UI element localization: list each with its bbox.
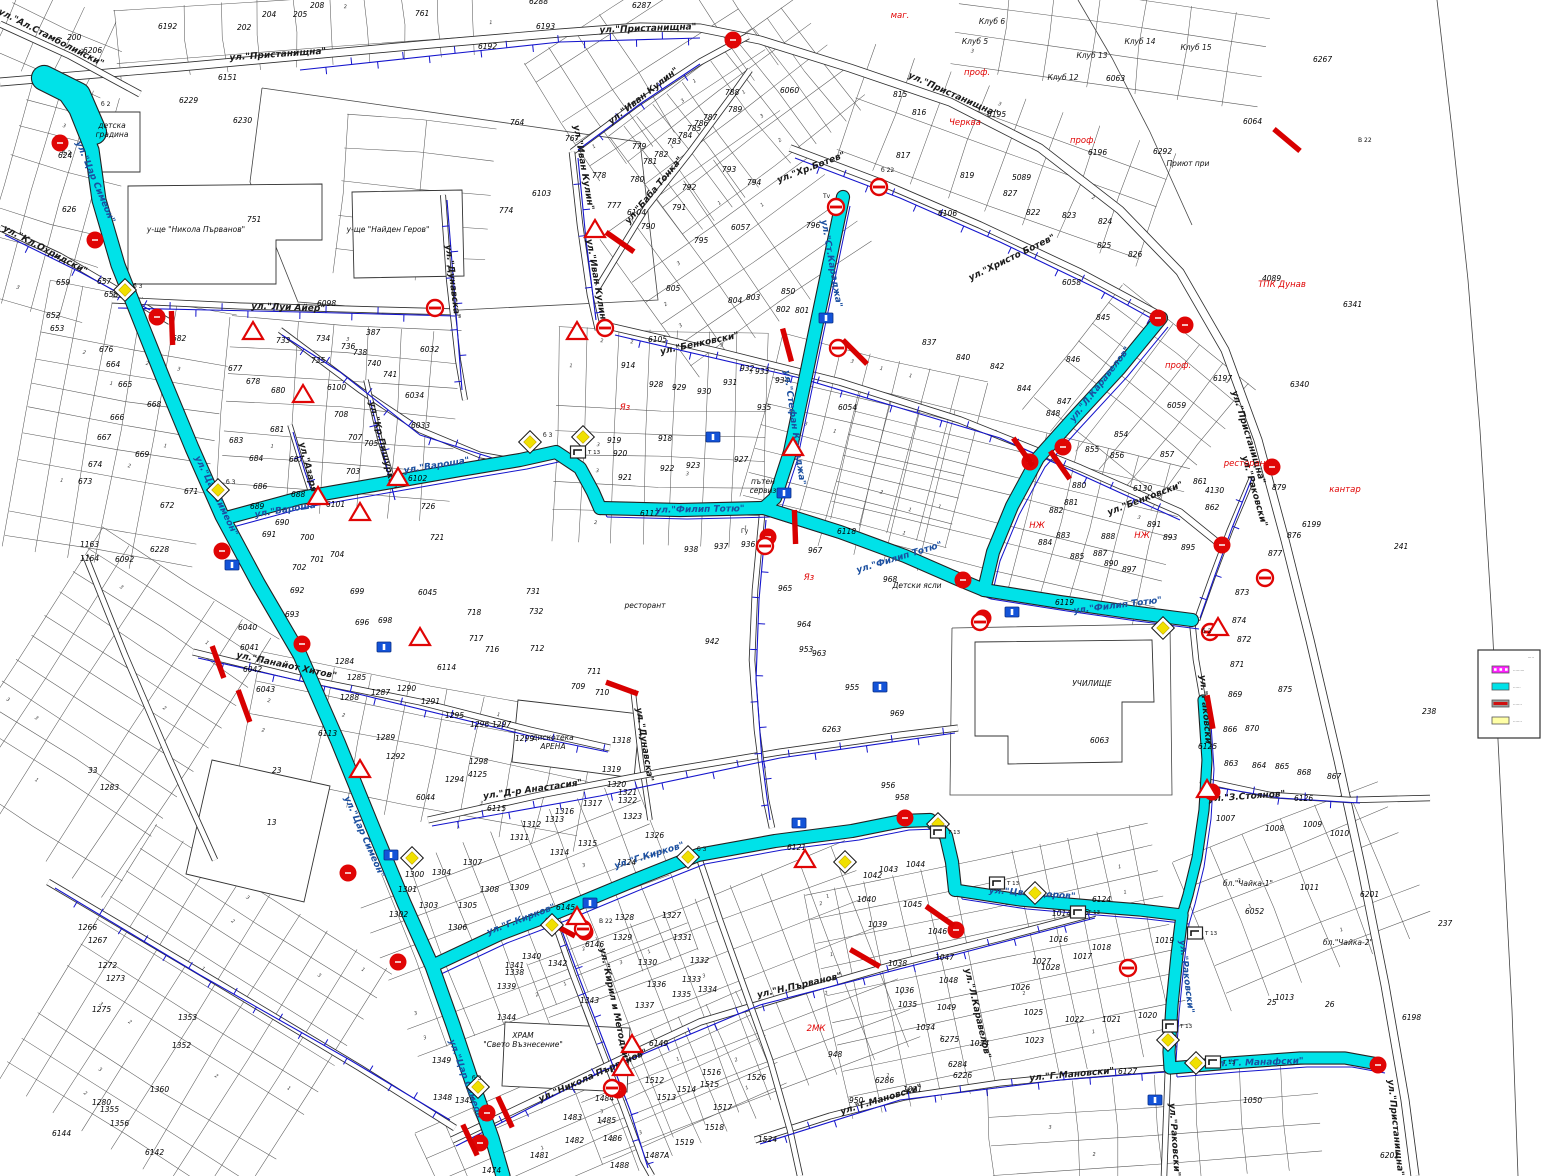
parcel-number: 6197 bbox=[1213, 374, 1232, 383]
lot-subnumber: 1 bbox=[569, 363, 572, 369]
parcel-number: 6092 bbox=[115, 555, 134, 564]
info-sign bbox=[377, 642, 391, 652]
parcel-number: 1016 bbox=[1049, 935, 1068, 944]
no-entry-sign bbox=[604, 1080, 620, 1096]
parcel-number: 965 bbox=[778, 584, 793, 593]
parcel-number: 6121 bbox=[787, 843, 806, 852]
sign-note: б 3 bbox=[133, 283, 143, 290]
parcel-number: 868 bbox=[1297, 768, 1312, 777]
svg-text:Т 13: Т 13 bbox=[947, 830, 961, 836]
parcel-number: 6284 bbox=[948, 1060, 967, 1069]
parcel-number: 1309 bbox=[510, 883, 529, 892]
parcel-number: 669 bbox=[135, 450, 150, 459]
parcel-number: 783 bbox=[667, 137, 682, 146]
parcel-number: 854 bbox=[1114, 430, 1129, 439]
parcel-number: 237 bbox=[1438, 919, 1453, 928]
poi-label: ХРАМ bbox=[511, 1031, 534, 1040]
parcel-number: 1487А bbox=[645, 1151, 669, 1160]
parcel-number: 865 bbox=[1275, 762, 1290, 771]
parcel-number: 23 bbox=[272, 766, 282, 775]
parcel-number: 664 bbox=[106, 360, 121, 369]
parcel-number: 693 bbox=[285, 610, 300, 619]
sign-note: В 22 bbox=[599, 918, 613, 925]
parcel-number: 692 bbox=[290, 586, 305, 595]
parcel-number: 1337 bbox=[635, 1001, 654, 1010]
parcel-number: 1355 bbox=[100, 1105, 119, 1114]
parcel-number: 6057 bbox=[731, 223, 750, 232]
parcel-number: 241 bbox=[1394, 542, 1408, 551]
parcel-number: 1048 bbox=[939, 976, 958, 985]
parcel-number: 1333 bbox=[682, 975, 701, 984]
red-annotation-label: проф. bbox=[1165, 361, 1191, 371]
parcel-number: 6060 bbox=[780, 86, 799, 95]
parcel-number: 674 bbox=[88, 460, 103, 469]
red-annotation-label: маг. bbox=[891, 11, 910, 21]
parcel-number: 1044 bbox=[906, 860, 925, 869]
parcel-number: 717 bbox=[469, 634, 484, 643]
parcel-number: 1300 bbox=[405, 870, 424, 879]
lot-subnumber: 3 bbox=[686, 471, 689, 477]
parcel-number: 864 bbox=[1252, 761, 1267, 770]
parcel-number: 698 bbox=[378, 616, 393, 625]
parcel-number: 1020 bbox=[1138, 1011, 1157, 1020]
parcel-number: 1306 bbox=[448, 923, 467, 932]
lot-subnumber: 2 bbox=[1092, 1152, 1096, 1158]
poi-label: Клуб 5 bbox=[962, 37, 989, 46]
parcel-number: 6063 bbox=[1090, 736, 1109, 745]
parcel-number: 202 bbox=[237, 23, 252, 32]
poi-label: АРЕНА bbox=[539, 742, 565, 751]
parcel-number: 1298 bbox=[469, 757, 488, 766]
parcel-number: 804 bbox=[728, 296, 743, 305]
parcel-number: 1518 bbox=[705, 1123, 724, 1132]
parcel-number: 6287 bbox=[632, 1, 651, 10]
parcel-number: 6145 bbox=[556, 903, 575, 912]
parcel-number: 1018 bbox=[1092, 943, 1111, 952]
red-annotation-label: проф. bbox=[1070, 136, 1096, 146]
parcel-number: 1011 bbox=[1300, 883, 1319, 892]
parcel-number: 208 bbox=[310, 1, 325, 10]
parcel-number: 6267 bbox=[1313, 55, 1332, 64]
parcel-number: 716 bbox=[485, 645, 500, 654]
legend-cyan: ······ bbox=[1492, 683, 1521, 690]
svg-text:Т 13: Т 13 bbox=[1006, 881, 1020, 887]
no-entry-sign bbox=[597, 320, 613, 336]
parcel-number: 680 bbox=[271, 386, 286, 395]
parcel-number: 4130 bbox=[1205, 486, 1224, 495]
parcel-number: 803 bbox=[746, 293, 761, 302]
parcel-number: 6127 bbox=[1118, 1067, 1137, 1076]
lot-subnumber: 2 bbox=[594, 520, 597, 526]
legend-box bbox=[1478, 650, 1540, 738]
hydrant-marker bbox=[1214, 537, 1231, 554]
hydrant-marker bbox=[294, 636, 311, 653]
info-sign bbox=[873, 682, 887, 692]
parcel-number: 1486 bbox=[603, 1134, 622, 1143]
parcel-number: 668 bbox=[147, 400, 162, 409]
parcel-number: 6058 bbox=[1062, 278, 1081, 287]
parcel-number: 1038 bbox=[888, 959, 907, 968]
info-sign bbox=[777, 488, 791, 498]
parcel-number: 6126 bbox=[1294, 794, 1313, 803]
parcel-number: 888 bbox=[1101, 532, 1116, 541]
parcel-number: 779 bbox=[632, 142, 647, 151]
info-sign bbox=[792, 818, 806, 828]
sign-note: б 22 bbox=[881, 167, 894, 174]
hydrant-marker bbox=[955, 572, 972, 589]
parcel-number: 1164 bbox=[80, 554, 99, 563]
parcel-number: 13 bbox=[267, 818, 277, 827]
parcel-number: 6064 bbox=[1243, 117, 1262, 126]
parcel-number: 6059 bbox=[1167, 401, 1186, 410]
poi-label: у-ще "Никола Първанов" bbox=[146, 225, 245, 234]
legend-item-label: ······· bbox=[1513, 719, 1522, 724]
parcel-number: 1050 bbox=[1243, 1096, 1262, 1105]
parcel-number: 6292 bbox=[1153, 147, 1172, 156]
parcel-number: 1288 bbox=[340, 693, 359, 702]
parcel-number: 691 bbox=[262, 530, 276, 539]
legend-title: ····· bbox=[1528, 655, 1534, 660]
poi-label: УЧИЛИЩЕ bbox=[1072, 679, 1112, 688]
parcel-number: 922 bbox=[660, 464, 675, 473]
parcel-number: 1514 bbox=[677, 1085, 696, 1094]
parcel-number: 1036 bbox=[895, 986, 914, 995]
parcel-number: 1010 bbox=[1330, 829, 1349, 838]
parcel-number: 1485 bbox=[597, 1116, 616, 1125]
svg-text:Т 13: Т 13 bbox=[1204, 931, 1218, 937]
parcel-number: 1040 bbox=[857, 895, 876, 904]
parcel-number: 790 bbox=[641, 222, 656, 231]
parcel-number: 876 bbox=[1287, 531, 1302, 540]
legend-item-label: ······ bbox=[1513, 685, 1521, 690]
parcel-number: 709 bbox=[571, 682, 586, 691]
parcel-number: 1524 bbox=[758, 1135, 777, 1144]
parcel-number: 1352 bbox=[172, 1041, 191, 1050]
hydrant-marker bbox=[214, 543, 231, 560]
parcel-number: 1046 bbox=[928, 927, 947, 936]
parcel-number: 856 bbox=[1110, 451, 1125, 460]
parcel-number: 1323 bbox=[623, 812, 642, 821]
parcel-number: 702 bbox=[292, 563, 307, 572]
parcel-number: 815 bbox=[893, 90, 908, 99]
sign-note: б 3 bbox=[697, 846, 707, 853]
parcel-number: 1360 bbox=[150, 1085, 169, 1094]
parcel-number: 1034 bbox=[916, 1023, 935, 1032]
parcel-number: 712 bbox=[530, 644, 545, 653]
poi-label: градина bbox=[96, 130, 129, 139]
parcel-number: 6063 bbox=[1106, 74, 1125, 83]
parcel-number: 1326 bbox=[645, 831, 664, 840]
hydrant-marker bbox=[390, 954, 407, 971]
parcel-number: 817 bbox=[896, 151, 911, 160]
parcel-number: 919 bbox=[607, 436, 622, 445]
parcel-number: 823 bbox=[1062, 211, 1077, 220]
parcel-number: 874 bbox=[1232, 616, 1247, 625]
parcel-number: 955 bbox=[845, 683, 860, 692]
lot-subnumber: 1 bbox=[270, 444, 274, 450]
cadastral-map-screenshot: 2111131323231332112233133331123232321231… bbox=[0, 0, 1541, 1176]
parcel-number: 788 bbox=[725, 88, 740, 97]
parcel-number: 937 bbox=[714, 542, 729, 551]
parcel-number: 1314 bbox=[550, 848, 569, 857]
parcel-number: 761 bbox=[415, 9, 429, 18]
parcel-number: 1342 bbox=[548, 959, 567, 968]
poi-label: Клуб 14 bbox=[1124, 37, 1155, 46]
info-sign bbox=[706, 432, 720, 442]
parcel-number: 684 bbox=[249, 454, 264, 463]
legend-item-label: ········· bbox=[1513, 668, 1524, 673]
parcel-number: 1039 bbox=[868, 920, 887, 929]
parcel-number: 935 bbox=[757, 403, 772, 412]
lot-subnumber: 1 bbox=[489, 20, 493, 26]
poi-label: Клуб 13 bbox=[1076, 51, 1107, 60]
parcel-number: 1163 bbox=[80, 540, 99, 549]
parcel-number: 677 bbox=[228, 364, 243, 373]
parcel-number: 871 bbox=[1230, 660, 1244, 669]
parcel-number: 6041 bbox=[240, 643, 259, 652]
svg-text:Т 13: Т 13 bbox=[1087, 910, 1101, 916]
info-sign bbox=[583, 898, 597, 908]
parcel-number: 6341 bbox=[1343, 300, 1362, 309]
parcel-number: 1356 bbox=[110, 1119, 129, 1128]
parcel-number: 657 bbox=[97, 277, 112, 286]
parcel-number: 688 bbox=[291, 490, 306, 499]
parcel-number: 6275 bbox=[940, 1035, 959, 1044]
legend-red-cased: ······· bbox=[1492, 700, 1522, 707]
parcel-number: 895 bbox=[1181, 543, 1196, 552]
no-entry-sign bbox=[1120, 960, 1136, 976]
parcel-number: 1339 bbox=[497, 982, 516, 991]
parcel-number: 704 bbox=[330, 550, 345, 559]
svg-text:Т 13: Т 13 bbox=[1222, 1060, 1236, 1066]
parcel-number: 778 bbox=[592, 171, 607, 180]
parcel-number: 1301 bbox=[398, 885, 417, 894]
parcel-number: 1348 bbox=[433, 1093, 452, 1102]
parcel-number: 1297 bbox=[492, 720, 511, 729]
parcel-number: 1517 bbox=[713, 1103, 732, 1112]
parcel-number: 1349 bbox=[432, 1056, 451, 1065]
parcel-number: 1304 bbox=[432, 868, 451, 877]
parcel-number: 877 bbox=[1268, 549, 1283, 558]
parcel-number: 1340 bbox=[522, 952, 541, 961]
parcel-number: 816 bbox=[912, 108, 927, 117]
parcel-number: 721 bbox=[430, 533, 444, 542]
parcel-number: 1023 bbox=[1025, 1036, 1044, 1045]
parcel-number: 1311 bbox=[510, 833, 529, 842]
parcel-number: 1035 bbox=[898, 1000, 917, 1009]
parcel-number: 1302 bbox=[389, 910, 408, 919]
parcel-number: 1474 bbox=[482, 1166, 501, 1175]
parcel-number: 1290 bbox=[397, 684, 416, 693]
parcel-number: 1335 bbox=[672, 990, 691, 999]
sign-note: б 3 bbox=[472, 1075, 482, 1082]
parcel-number: 6199 bbox=[1302, 520, 1321, 529]
parcel-number: 801 bbox=[795, 306, 809, 315]
parcel-number: 6113 bbox=[318, 729, 337, 738]
parcel-number: 1017 bbox=[1073, 952, 1092, 961]
no-entry-sign bbox=[427, 300, 443, 316]
red-annotation-label: НЖ bbox=[1134, 531, 1150, 541]
parcel-number: 6288 bbox=[529, 0, 548, 6]
parcel-number: 857 bbox=[1160, 450, 1175, 459]
parcel-number: 200 bbox=[67, 33, 82, 42]
parcel-number: 5089 bbox=[1012, 173, 1031, 182]
poi-label: Клуб 6 bbox=[979, 17, 1006, 26]
parcel-number: 734 bbox=[316, 334, 331, 343]
lot-subnumber: 3 bbox=[597, 442, 600, 448]
parcel-number: 873 bbox=[1235, 588, 1250, 597]
parcel-number: 1481 bbox=[530, 1151, 549, 1160]
parcel-number: 733 bbox=[276, 336, 291, 345]
poi-label: детска bbox=[97, 121, 126, 130]
hydrant-marker bbox=[479, 1105, 496, 1122]
parcel-number: 6124 bbox=[1092, 895, 1111, 904]
parcel-number: 740 bbox=[367, 359, 382, 368]
info-sign bbox=[819, 313, 833, 323]
parcel-number: 671 bbox=[184, 487, 198, 496]
red-annotation-label: Яз bbox=[803, 573, 815, 583]
parcel-number: 845 bbox=[1096, 313, 1111, 322]
parcel-number: 1488 bbox=[610, 1161, 629, 1170]
parcel-number: 667 bbox=[97, 433, 112, 442]
parcel-number: 701 bbox=[310, 555, 324, 564]
parcel-number: 6192 bbox=[478, 42, 497, 51]
parcel-number: 1272 bbox=[98, 961, 117, 970]
parcel-number: 933 bbox=[755, 367, 770, 376]
parcel-number: 1329 bbox=[613, 933, 632, 942]
parcel-number: 626 bbox=[62, 205, 77, 214]
red-annotation-label: проф. bbox=[964, 68, 990, 78]
parcel-number: 6196 bbox=[1088, 148, 1107, 157]
parcel-number: 891 bbox=[1147, 520, 1161, 529]
parcel-number: 700 bbox=[300, 533, 315, 542]
parcel-number: 1315 bbox=[578, 839, 597, 848]
svg-text:Т 13: Т 13 bbox=[587, 450, 601, 456]
parcel-number: 1519 bbox=[675, 1138, 694, 1147]
parcel-number: 690 bbox=[275, 518, 290, 527]
parcel-number: 699 bbox=[350, 587, 365, 596]
parcel-number: 673 bbox=[78, 477, 93, 486]
parcel-number: 1513 bbox=[657, 1093, 676, 1102]
parcel-number: 875 bbox=[1278, 685, 1293, 694]
lot-subnumber: 2 bbox=[344, 4, 348, 10]
parcel-number: 1343 bbox=[580, 996, 599, 1005]
parcel-number: 1287 bbox=[371, 688, 390, 697]
parcel-number: 6103 bbox=[532, 189, 551, 198]
parcel-number: 918 bbox=[658, 434, 673, 443]
parcel-number: 738 bbox=[353, 348, 368, 357]
parcel-number: 1327 bbox=[662, 911, 681, 920]
parcel-number: 6102 bbox=[408, 474, 427, 483]
parcel-number: 735 bbox=[311, 356, 326, 365]
parcel-number: 914 bbox=[621, 361, 636, 370]
parcel-number: 764 bbox=[510, 118, 525, 127]
parcel-number: 942 bbox=[705, 637, 720, 646]
parcel-number: 920 bbox=[613, 449, 628, 458]
legend-yellow: ······· bbox=[1492, 717, 1522, 724]
parcel-number: 879 bbox=[1272, 483, 1287, 492]
parcel-number: 1266 bbox=[78, 923, 97, 932]
parcel-number: 805 bbox=[666, 284, 681, 293]
parcel-number: 861 bbox=[1193, 477, 1207, 486]
parcel-number: 795 bbox=[694, 236, 709, 245]
parcel-number: 6105 bbox=[648, 335, 667, 344]
poi-label: ресторант bbox=[623, 601, 666, 610]
map-legend: ·································· bbox=[1478, 650, 1540, 738]
parcel-number: 1328 bbox=[615, 913, 634, 922]
parcel-number: 6193 bbox=[536, 22, 555, 31]
parcel-number: 33 bbox=[88, 766, 98, 775]
parcel-number: 930 bbox=[697, 387, 712, 396]
hydrant-marker bbox=[1150, 310, 1167, 327]
parcel-number: 708 bbox=[334, 410, 349, 419]
parcel-number: 1482 bbox=[565, 1136, 584, 1145]
parcel-number: 840 bbox=[956, 353, 971, 362]
parcel-number: 1331 bbox=[673, 933, 692, 942]
parcel-number: 1305 bbox=[458, 901, 477, 910]
red-annotation-label: НЖ bbox=[1029, 521, 1045, 531]
parcel-number: 850 bbox=[781, 287, 796, 296]
parcel-number: 792 bbox=[682, 183, 697, 192]
parcel-number: 819 bbox=[960, 171, 975, 180]
parcel-number: 824 bbox=[1098, 217, 1113, 226]
parcel-number: 1526 bbox=[747, 1073, 766, 1082]
red-annotation-label: ТПК Дунав bbox=[1258, 280, 1306, 290]
parcel-number: 731 bbox=[526, 587, 540, 596]
parcel-number: 928 bbox=[649, 380, 664, 389]
parcel-number: 6040 bbox=[238, 623, 257, 632]
parcel-number: 6226 bbox=[953, 1071, 972, 1080]
legend-item-label: ······· bbox=[1513, 702, 1522, 707]
parcel-number: 686 bbox=[253, 482, 268, 491]
parcel-number: 678 bbox=[246, 377, 261, 386]
parcel-number: 726 bbox=[421, 502, 436, 511]
no-entry-sign bbox=[1257, 570, 1273, 586]
parcel-number: 938 bbox=[684, 545, 699, 554]
poi-label: дискотека bbox=[531, 733, 574, 742]
parcel-number: 921 bbox=[618, 473, 632, 482]
hydrant-marker bbox=[340, 865, 357, 882]
parcel-number: 672 bbox=[160, 501, 175, 510]
parcel-number: 890 bbox=[1104, 559, 1119, 568]
hydrant-marker bbox=[1177, 317, 1194, 334]
poi-label: бл."Чайка-2" bbox=[1323, 938, 1373, 947]
parcel-number: 881 bbox=[1064, 498, 1078, 507]
parcel-number: 1292 bbox=[386, 752, 405, 761]
parcel-number: 1019 bbox=[1155, 936, 1174, 945]
parcel-number: 897 bbox=[1122, 565, 1137, 574]
lot-subnumber: 2 bbox=[600, 338, 603, 344]
parcel-number: 6144 bbox=[52, 1129, 71, 1138]
parcel-number: 732 bbox=[529, 607, 544, 616]
street-name-label: ул."Филип Тотю" bbox=[655, 504, 744, 516]
parcel-number: 1318 bbox=[612, 736, 631, 745]
parcel-number: 774 bbox=[499, 206, 514, 215]
parcel-number: 6032 bbox=[420, 345, 439, 354]
hydrant-marker bbox=[149, 309, 166, 326]
parcel-number: 827 bbox=[1003, 189, 1018, 198]
parcel-number: 666 bbox=[110, 413, 125, 422]
red-annotation-label: Яз bbox=[619, 403, 631, 413]
parcel-number: 1332 bbox=[690, 956, 709, 965]
parcel-number: 6115 bbox=[487, 804, 506, 813]
parcel-number: 825 bbox=[1097, 241, 1112, 250]
parcel-number: 953 bbox=[799, 645, 814, 654]
parcel-number: 703 bbox=[346, 467, 361, 476]
sign-note: б 2 bbox=[101, 101, 111, 108]
parcel-number: 1344 bbox=[497, 1013, 516, 1022]
parcel-number: 932 bbox=[740, 364, 755, 373]
